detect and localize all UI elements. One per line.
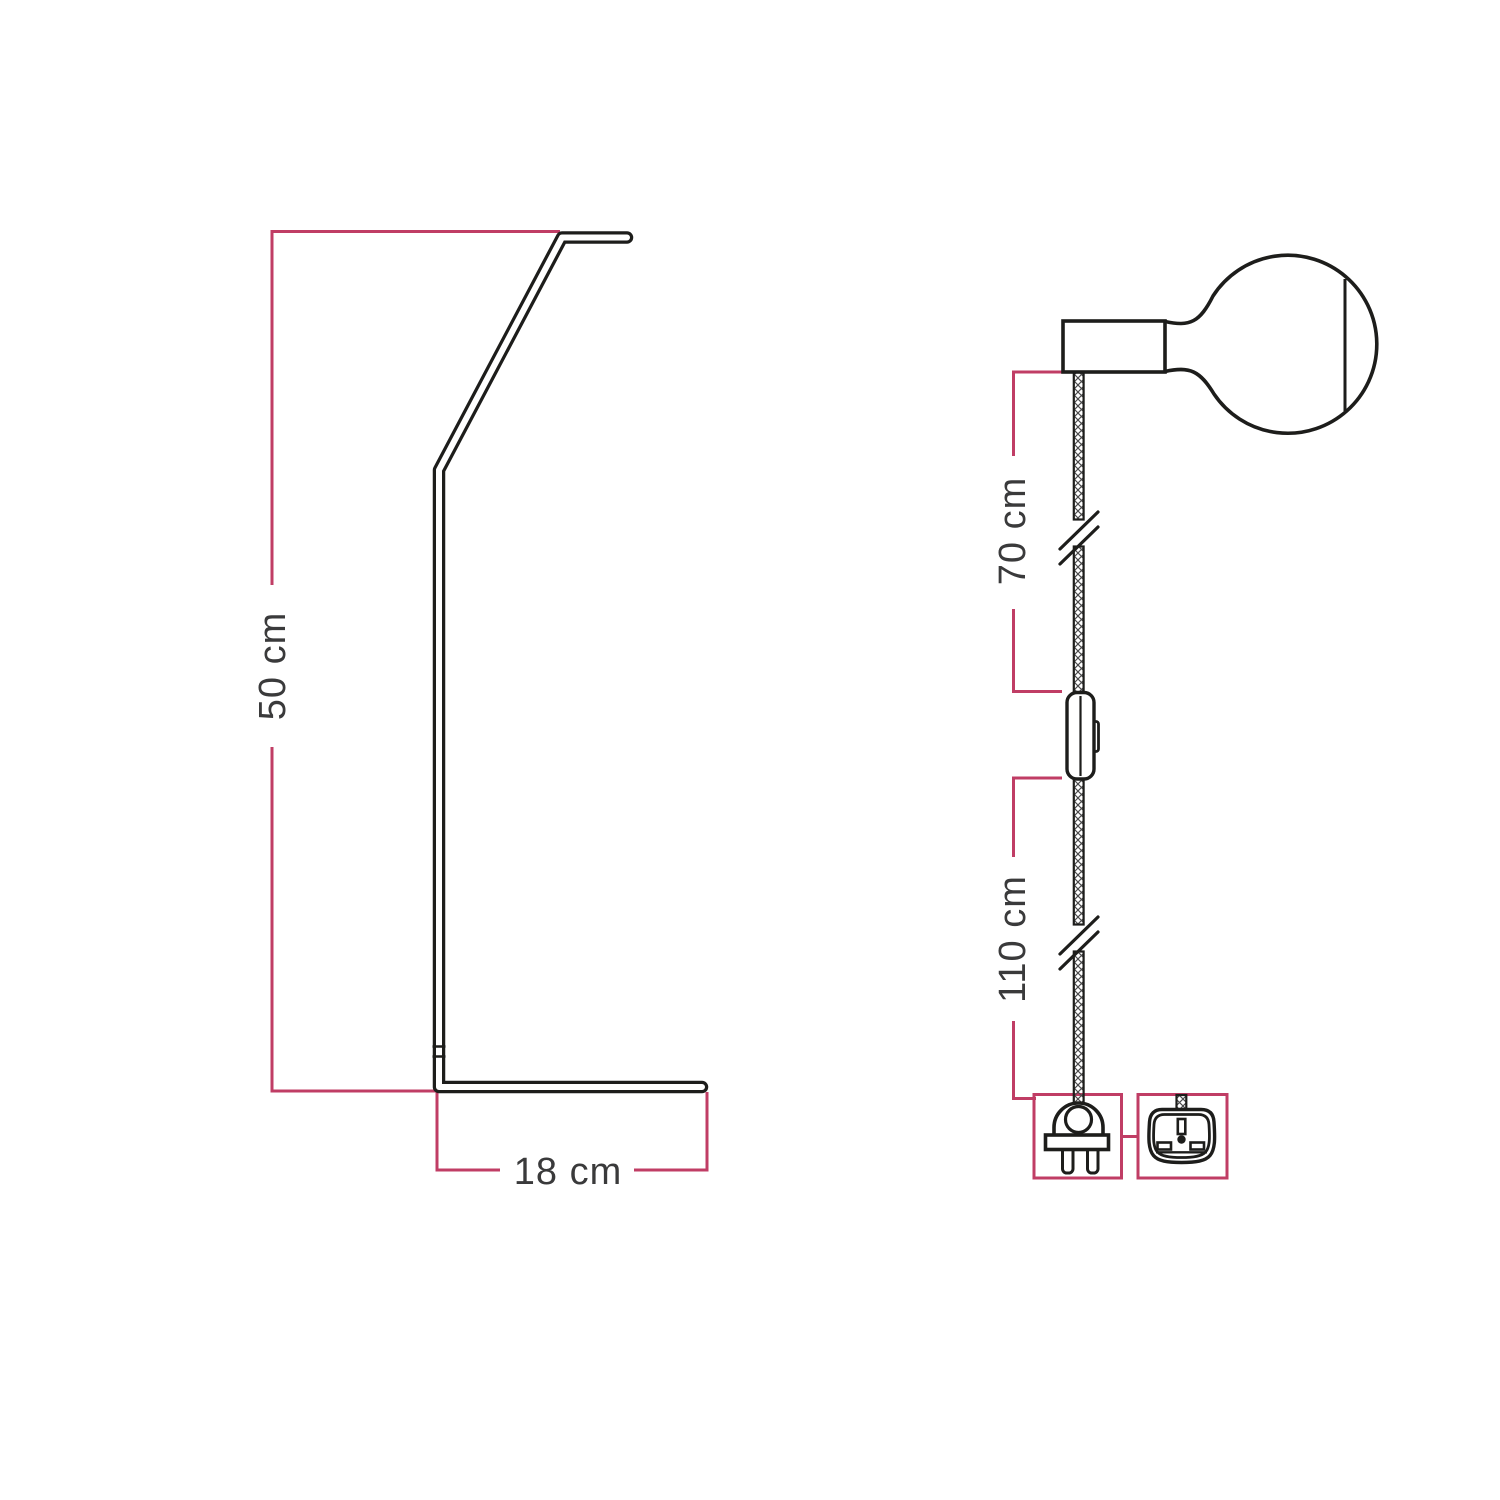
upper-cable-dimension-line-top xyxy=(1014,372,1063,456)
cable-segment xyxy=(1074,547,1084,694)
stand-dimension-lines: 50 cm 18 cm xyxy=(252,232,707,1194)
stand-outline-inner xyxy=(439,238,702,1088)
lower-cable-dimension-line-bottom xyxy=(1014,1021,1037,1099)
height-dimension-line-lower xyxy=(272,747,500,1170)
cable-segment xyxy=(1074,778,1084,925)
cable-segment xyxy=(1074,952,1084,1104)
height-dimension-line-upper xyxy=(272,232,560,586)
product-dimension-diagram: 50 cm 18 cm 70 cm 110 cm xyxy=(0,0,1500,1500)
pendant-dimension-lines: 70 cm 110 cm xyxy=(992,372,1227,1178)
depth-dimension-line-right xyxy=(634,1092,707,1170)
eu-plug-crossbar xyxy=(1046,1135,1109,1150)
stand-profile-drawing xyxy=(433,238,703,1088)
inline-switch-icon xyxy=(1067,693,1099,780)
upper-cable-dimension-label: 70 cm xyxy=(992,477,1034,585)
depth-dimension-label: 18 cm xyxy=(514,1151,622,1193)
lower-cable-dimension-label: 110 cm xyxy=(992,875,1034,1003)
pendant-lamp-drawing xyxy=(1046,255,1377,1173)
diagram-canvas: 50 cm 18 cm 70 cm 110 cm xyxy=(0,0,1500,1500)
stand-outline xyxy=(439,238,702,1088)
cable-segment xyxy=(1074,372,1084,520)
eu-plug-hole xyxy=(1066,1107,1092,1133)
uk-plug-center-dot xyxy=(1177,1135,1185,1143)
height-dimension-label: 50 cm xyxy=(252,612,294,720)
lower-cable-dimension-line-top xyxy=(1014,778,1063,857)
eu-two-pin-plug-icon xyxy=(1046,1103,1109,1173)
upper-cable-dimension-line-bottom xyxy=(1014,609,1063,692)
uk-three-pin-plug-icon xyxy=(1149,1095,1215,1163)
lamp-holder-icon xyxy=(1063,321,1165,372)
